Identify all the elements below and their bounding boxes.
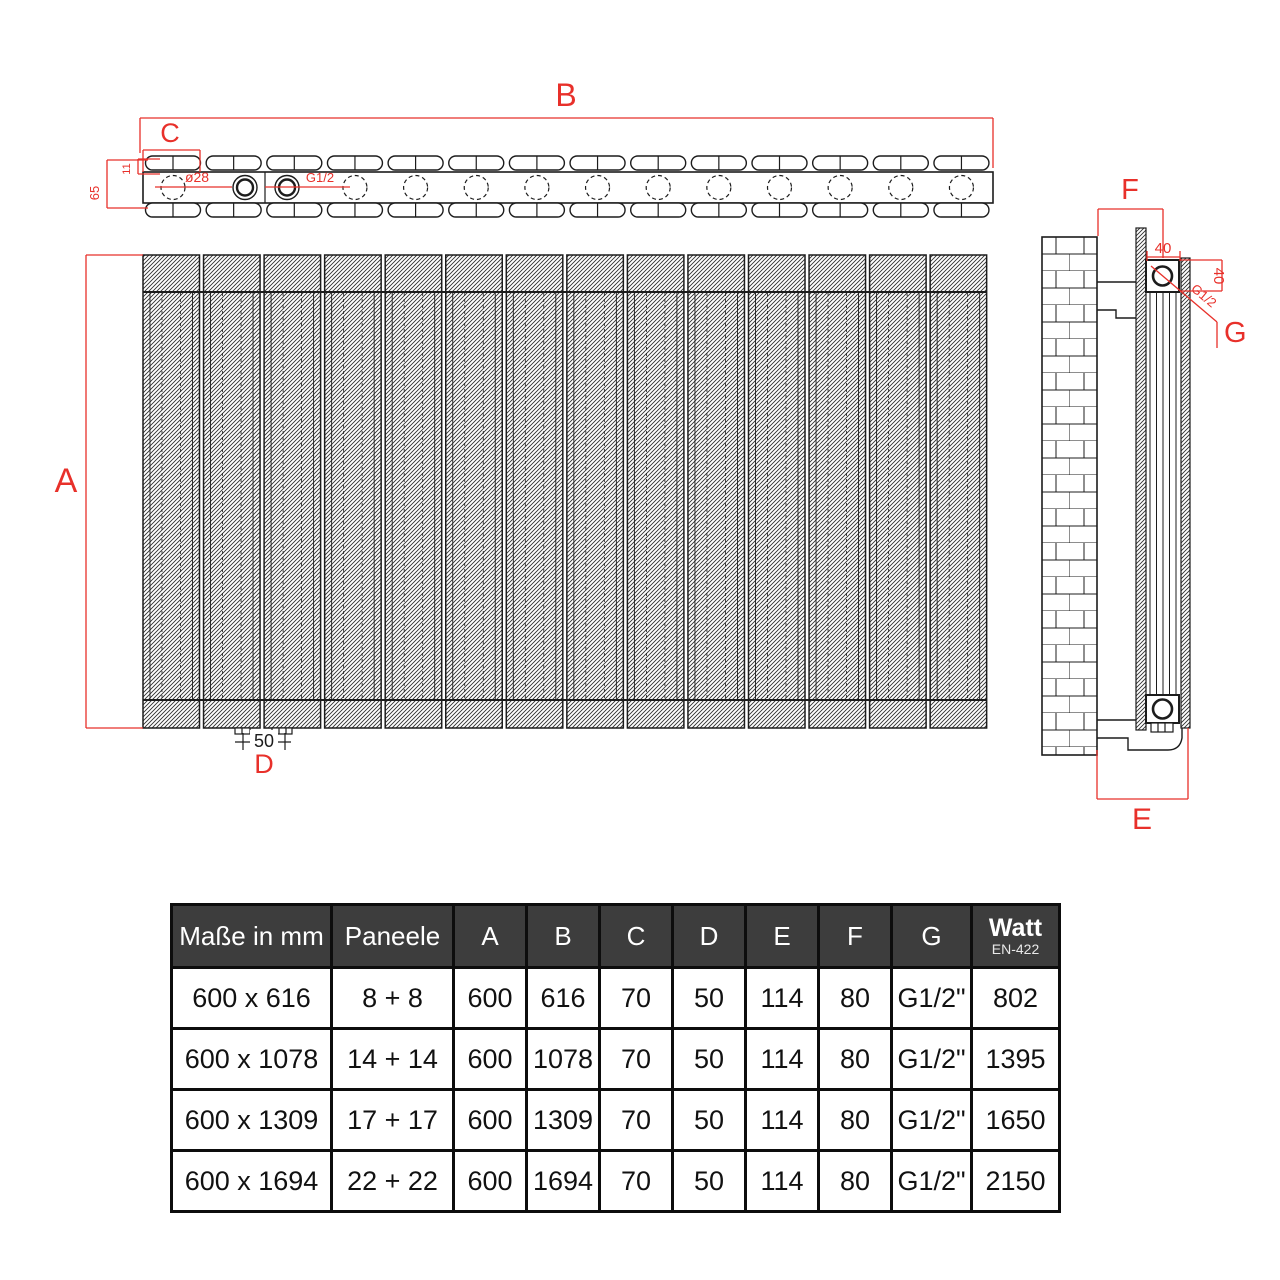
table-cell: 17 + 17 (332, 1090, 454, 1151)
bottom-connection-port (1153, 700, 1172, 719)
table-header-cell: A (454, 905, 527, 968)
table-header-cell: D (673, 905, 746, 968)
bottom-foot-comb (1151, 723, 1173, 732)
table-cell: 8 + 8 (332, 968, 454, 1029)
table-cell: 114 (746, 1029, 819, 1090)
technical-drawing-page: B C 65 11 ø28 G1/2 50 D (0, 0, 1280, 1280)
table-cell: 600 (454, 1151, 527, 1212)
table-cell: 70 (600, 1151, 673, 1212)
radiator-panel (809, 255, 866, 728)
dim-label-50: 50 (254, 731, 274, 751)
table-cell: 616 (527, 968, 600, 1029)
radiator-panel (264, 255, 321, 728)
table-cell: 1309 (527, 1090, 600, 1151)
tube-circle (586, 176, 610, 200)
wall-section (1042, 237, 1097, 755)
table-cell: 600 x 1694 (172, 1151, 332, 1212)
table-header-cell: G (892, 905, 972, 968)
radiator-panel (930, 255, 987, 728)
table-cell: 600 (454, 1029, 527, 1090)
table-cell: 600 x 1078 (172, 1029, 332, 1090)
table-cell: 1078 (527, 1029, 600, 1090)
tube-circle (525, 176, 549, 200)
side-panel-band-left (1136, 228, 1146, 730)
dim-label-c: C (160, 118, 180, 148)
tube-circle (404, 176, 428, 200)
radiator-panel (325, 255, 382, 728)
table-cell: 802 (972, 968, 1060, 1029)
table-row: 600 x 6168 + 8600616705011480G1/2"802 (172, 968, 1060, 1029)
table-header-cell: Maße in mm (172, 905, 332, 968)
radiator-panel (506, 255, 563, 728)
table-cell: 600 (454, 1090, 527, 1151)
table-cell: 114 (746, 968, 819, 1029)
radiator-panel (870, 255, 927, 728)
table-header-cell: Paneele (332, 905, 454, 968)
table-cell: 70 (600, 1090, 673, 1151)
radiator-panel (446, 255, 503, 728)
table-cell: G1/2" (892, 1090, 972, 1151)
table-cell: 22 + 22 (332, 1151, 454, 1212)
radiator-panel (567, 255, 624, 728)
table-cell: 600 x 616 (172, 968, 332, 1029)
table-header-cell: E (746, 905, 819, 968)
height-dimension-a (86, 255, 143, 728)
tube-circle (464, 176, 488, 200)
table-cell: G1/2" (892, 1029, 972, 1090)
radiator-panel (143, 255, 200, 728)
table-row: 600 x 169422 + 226001694705011480G1/2"21… (172, 1151, 1060, 1212)
table-row: 600 x 130917 + 176001309705011480G1/2"16… (172, 1090, 1060, 1151)
top-view: B C 65 11 ø28 G1/2 (87, 77, 993, 217)
table-cell: 80 (819, 1090, 892, 1151)
side-profile-lines (1150, 292, 1176, 695)
top-view-panel-row-top (146, 156, 989, 170)
top-view-panel-row-bottom (146, 203, 989, 217)
watt-subtitle: EN-422 (973, 941, 1058, 957)
dim-label-b: B (555, 77, 576, 113)
table-cell: 1395 (972, 1029, 1060, 1090)
table-cell: 50 (673, 1029, 746, 1090)
table-cell: 80 (819, 1151, 892, 1212)
front-view: 50 D A (55, 255, 987, 779)
watt-title: Watt (973, 915, 1058, 941)
dim-label-d: D (254, 749, 274, 779)
dim-label-g12-top: G1/2 (306, 170, 334, 185)
radiator-panel (627, 255, 684, 728)
table-cell: G1/2" (892, 968, 972, 1029)
spec-table-header-row: Maße in mmPaneeleABCDEFGWattEN-422 (172, 905, 1060, 968)
tube-circle (646, 176, 670, 200)
table-cell: 70 (600, 968, 673, 1029)
dim-label-40-right: 40 (1210, 268, 1227, 285)
radiator-panel (749, 255, 806, 728)
radiator-panel (204, 255, 260, 728)
front-view-panels (143, 255, 987, 728)
table-cell: 50 (673, 1151, 746, 1212)
table-cell: 50 (673, 1090, 746, 1151)
table-cell: 2150 (972, 1151, 1060, 1212)
dim-label-a: A (55, 462, 78, 500)
dim-label-11: 11 (121, 163, 133, 174)
radiator-technical-drawing: B C 65 11 ø28 G1/2 50 D (0, 0, 1280, 880)
table-header-cell: C (600, 905, 673, 968)
table-cell: 70 (600, 1029, 673, 1090)
dim-label-g: G (1224, 317, 1247, 349)
connection-tube-inner (237, 180, 253, 196)
table-cell: 1694 (527, 1151, 600, 1212)
dim-label-f: F (1121, 174, 1139, 206)
spec-table: Maße in mmPaneeleABCDEFGWattEN-422 600 x… (170, 903, 1061, 1213)
dim-label-40-top: 40 (1155, 240, 1172, 257)
tube-circle (889, 176, 913, 200)
table-cell: 600 x 1309 (172, 1090, 332, 1151)
table-cell: 80 (819, 1029, 892, 1090)
table-cell: 114 (746, 1151, 819, 1212)
table-cell: 1650 (972, 1090, 1060, 1151)
table-cell: 80 (819, 968, 892, 1029)
tube-circle (707, 176, 731, 200)
table-header-cell-watt: WattEN-422 (972, 905, 1060, 968)
side-panel-band-right (1181, 258, 1190, 728)
dim-label-g12-side: G1/2 (1188, 281, 1219, 311)
side-view: F 40 40 G1/2 G E (1042, 174, 1247, 836)
tube-circle (768, 176, 792, 200)
tube-circle (828, 176, 852, 200)
table-cell: G1/2" (892, 1151, 972, 1212)
dim-label-e: E (1132, 803, 1152, 836)
radiator-panel (385, 255, 442, 728)
table-row: 600 x 107814 + 146001078705011480G1/2"13… (172, 1029, 1060, 1090)
dim-label-65: 65 (87, 186, 102, 200)
table-header-cell: F (819, 905, 892, 968)
tube-circle (949, 176, 973, 200)
dim-label-dia28: ø28 (185, 169, 209, 185)
table-cell: 114 (746, 1090, 819, 1151)
radiator-panel (688, 255, 745, 728)
table-cell: 50 (673, 968, 746, 1029)
table-cell: 600 (454, 968, 527, 1029)
table-header-cell: B (527, 905, 600, 968)
table-cell: 14 + 14 (332, 1029, 454, 1090)
